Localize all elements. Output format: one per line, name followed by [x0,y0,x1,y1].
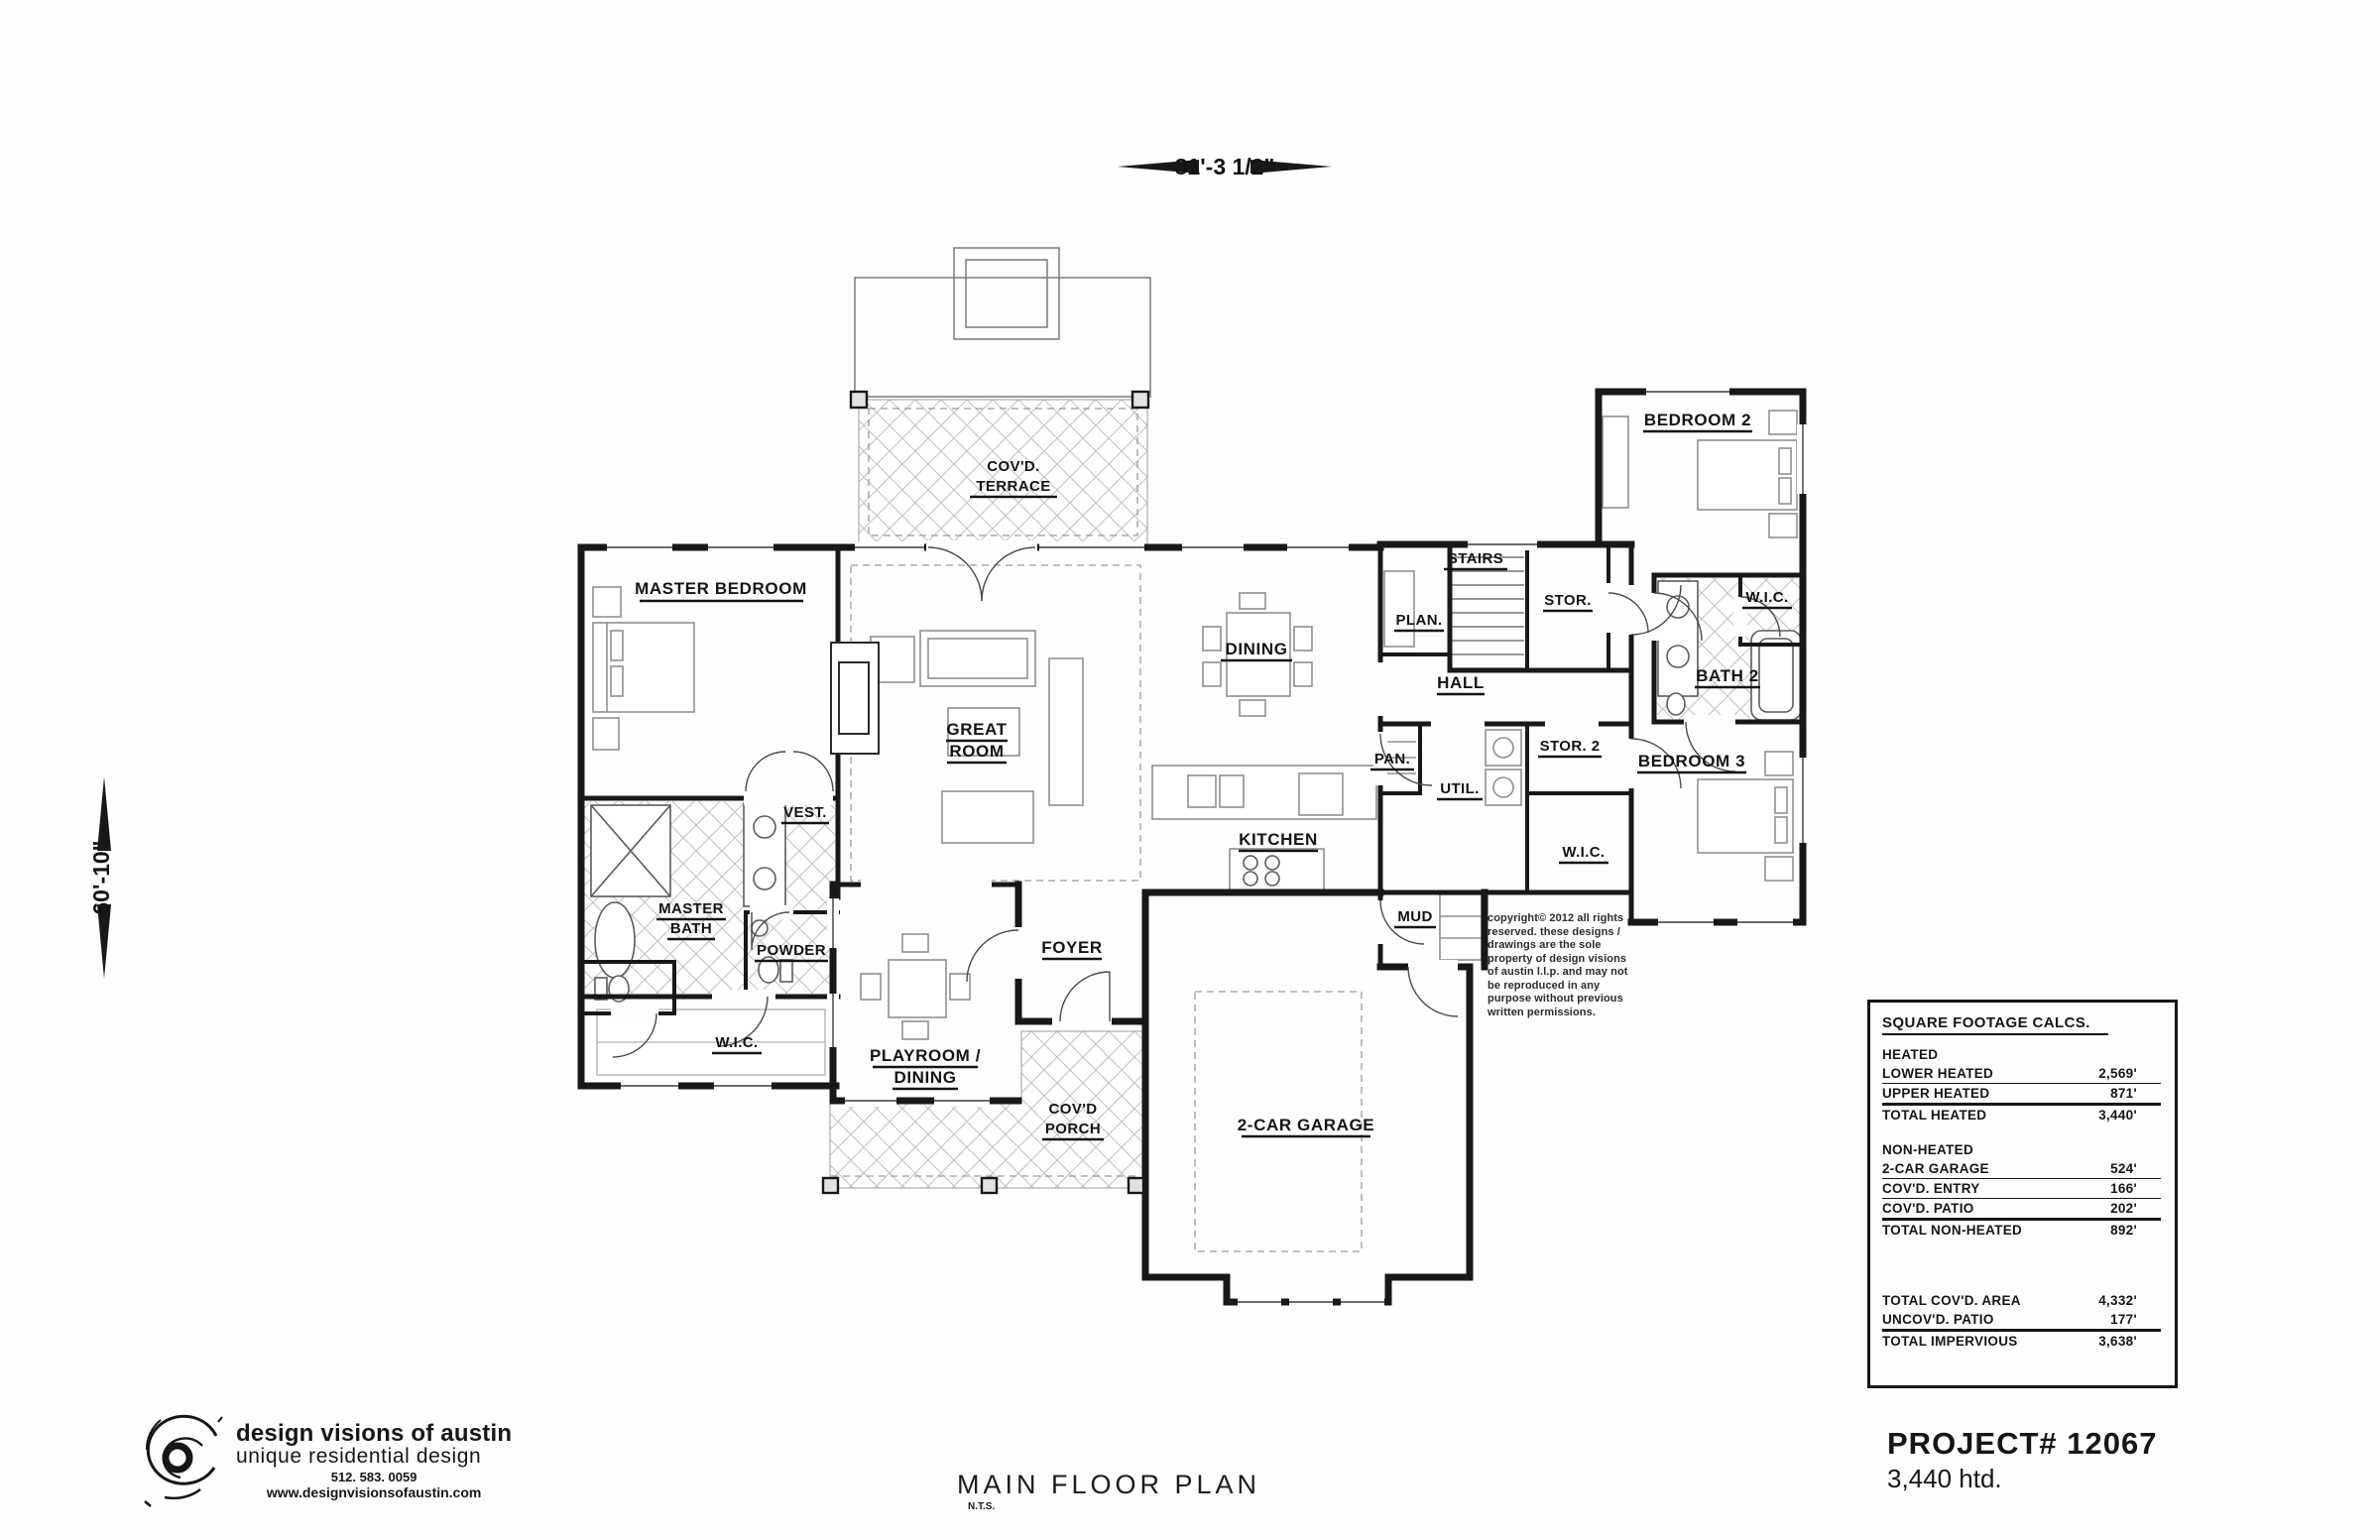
room-label-covd-terrace: COV'D. [987,458,1039,475]
sqft-row-uncovd-patio: UNCOV'D. PATIO177' [1882,1310,2161,1332]
sqft-row-lower-heated: LOWER HEATED2,569' [1882,1064,2161,1084]
logo-website: www.designvisionsofaustin.com [236,1484,512,1500]
room-label-mud: MUD [1397,908,1432,925]
room-label-stairs: STAIRS [1448,550,1503,567]
room-label-wic-hall: W.I.C. [1562,844,1605,861]
room-label-bedroom2: BEDROOM 2 [1644,411,1751,429]
sqft-row-total-heated: TOTAL HEATED3,440' [1882,1106,2161,1125]
square-footage-table: SQUARE FOOTAGE CALCS. HEATED LOWER HEATE… [1867,1000,2178,1388]
sqft-row-total-impervious: TOTAL IMPERVIOUS3,638' [1882,1332,2161,1351]
dimension-left-label: 60'-10" [88,840,114,914]
sqft-row-upper-heated: UPPER HEATED871' [1882,1084,2161,1106]
room-label-pan: PAN. [1374,751,1410,768]
copyright-note: copyright© 2012 all rights reserved. the… [1487,912,1664,1019]
drawing-sheet: 81'-3 1/2" 60'-10" MASTER BEDROOM COV'D.… [0,0,2380,1540]
svg-text:DINING: DINING [893,1068,956,1087]
room-label-stor2: STOR. 2 [1540,738,1601,755]
room-label-bedroom3: BEDROOM 3 [1638,752,1745,770]
sqft-row-covd-entry: COV'D. ENTRY166' [1882,1179,2161,1199]
sqft-row-non-heated: NON-HEATED [1882,1140,2161,1159]
room-label-great-room: GREAT [946,720,1007,739]
room-label-garage: 2-CAR GARAGE [1238,1116,1375,1134]
room-label-wic-master: W.I.C. [715,1034,758,1051]
dimension-top-label: 81'-3 1/2" [1175,154,1275,179]
project-heated-area: 3,440 htd. [1887,1464,2002,1494]
room-label-dining: DINING [1225,640,1287,658]
svg-text:TERRACE: TERRACE [976,478,1050,495]
room-label-master-bath: MASTER [658,900,724,917]
room-label-master-bedroom: MASTER BEDROOM [635,579,807,598]
logo-name: design visions of austin [236,1422,512,1446]
logo-eye-icon [131,1406,230,1515]
uncovered-patio-outline [855,248,1150,397]
dimension-left: 60'-10" [88,776,114,979]
svg-text:PORCH: PORCH [1045,1121,1101,1137]
room-label-playroom: PLAYROOM / [870,1046,981,1065]
room-label-util: UTIL. [1440,780,1480,797]
room-label-plan: PLAN. [1396,612,1443,629]
logo-block: design visions of austin unique resident… [131,1406,512,1515]
svg-text:ROOM: ROOM [949,742,1004,761]
room-label-covd-porch: COV'D [1049,1101,1098,1118]
room-label-wic-bedroom2: W.I.C. [1745,589,1788,606]
sqft-row-covd-patio: COV'D. PATIO202' [1882,1199,2161,1221]
sqft-row-garage: 2-CAR GARAGE524' [1882,1159,2161,1179]
dimension-top: 81'-3 1/2" [1118,154,1332,179]
fireplace [831,643,879,754]
room-label-bath2: BATH 2 [1696,666,1759,685]
room-label-kitchen: KITCHEN [1239,830,1318,849]
sqft-row-total-covd-area: TOTAL COV'D. AREA4,332' [1882,1291,2161,1310]
room-label-foyer: FOYER [1041,938,1103,957]
plan-scale: N.T.S. [968,1501,995,1512]
sqft-table-title: SQUARE FOOTAGE CALCS. [1882,1014,2108,1035]
room-label-powder: POWDER [757,942,826,959]
room-label-vest: VEST. [783,804,827,821]
sqft-row-total-non-heated: TOTAL NON-HEATED892' [1882,1221,2161,1240]
room-label-hall: HALL [1437,673,1485,692]
sqft-row-heated: HEATED [1882,1045,2161,1064]
stair-treads [1452,557,1524,668]
room-label-stor: STOR. [1544,592,1592,609]
svg-text:BATH: BATH [670,920,712,937]
logo-tagline: unique residential design [236,1446,512,1468]
logo-phone: 512. 583. 0059 [236,1470,512,1484]
plan-title: MAIN FLOOR PLAN [957,1470,1260,1500]
project-number: PROJECT# 12067 [1887,1426,2157,1462]
